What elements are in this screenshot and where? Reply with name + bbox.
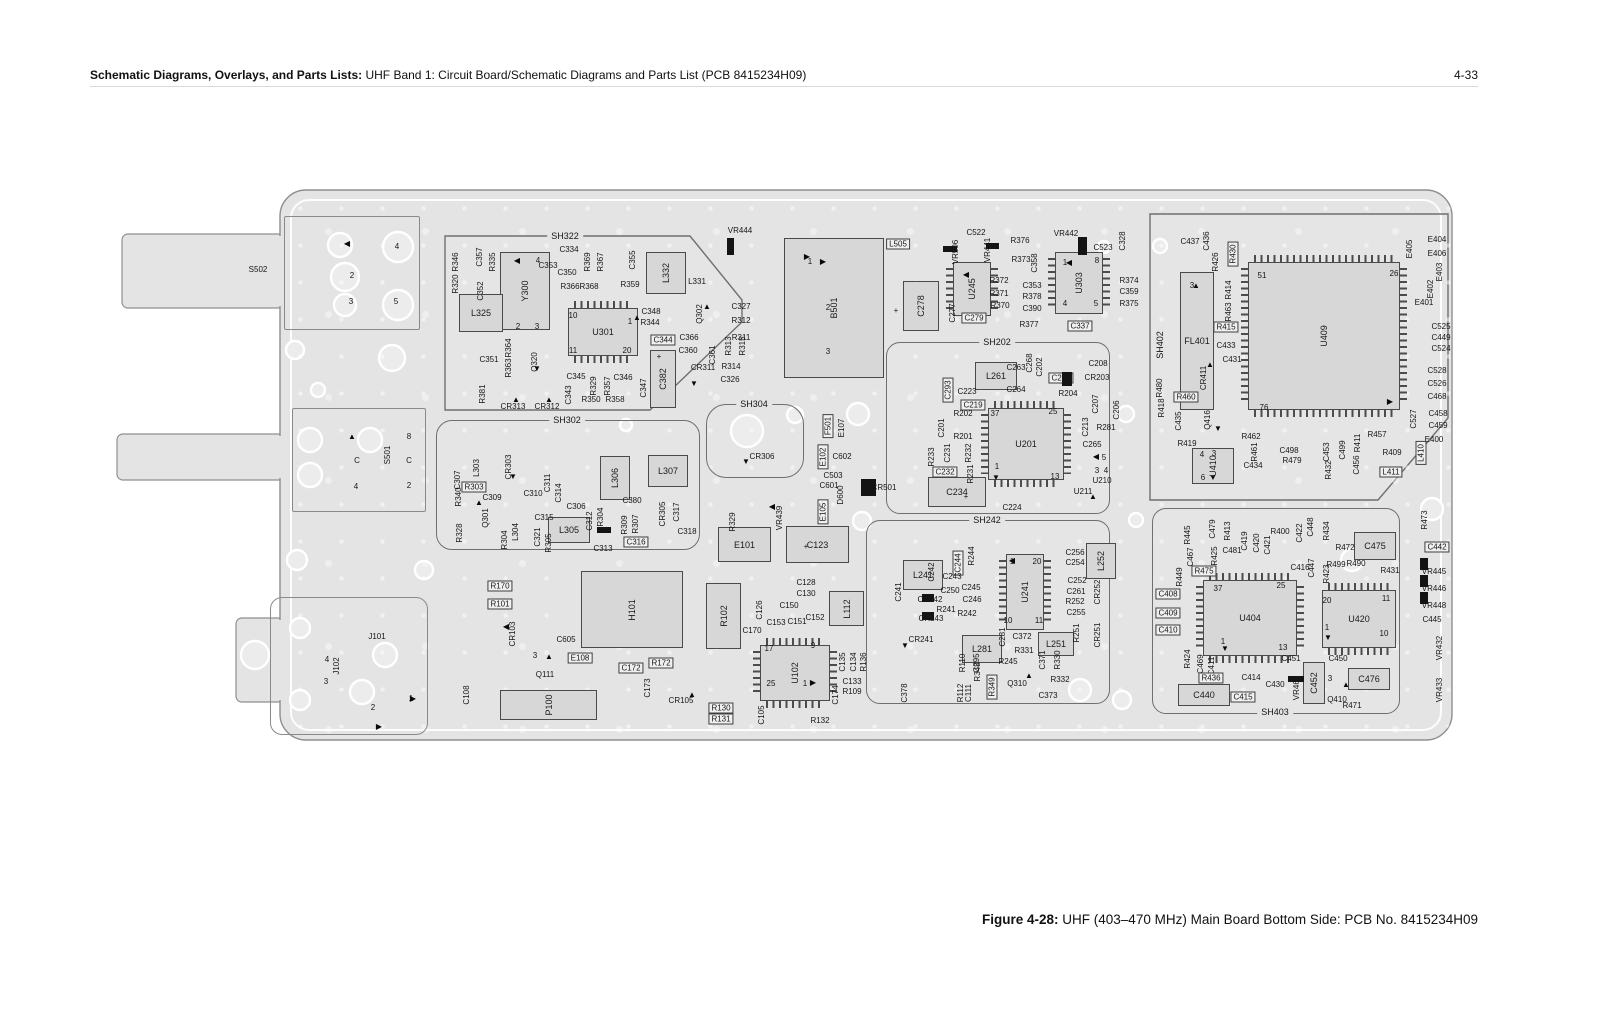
polarity-mark: ▲ xyxy=(475,499,483,507)
polarity-mark: ▼ xyxy=(1209,474,1217,482)
ic-label-C278: C278 xyxy=(916,295,926,317)
ref-label-S501: S501 xyxy=(384,446,392,465)
ic-label-L305: L305 xyxy=(559,525,579,535)
ref-label-R460: R460 xyxy=(1173,392,1198,403)
ref-label-C310: C310 xyxy=(523,490,542,498)
ref-label-5: 5 xyxy=(1094,300,1098,308)
ref-label-10: 10 xyxy=(1004,617,1013,625)
ref-label-4: 4 xyxy=(395,243,399,251)
ref-label-C450: C450 xyxy=(1328,655,1347,663)
ref-label-26: 26 xyxy=(1390,270,1399,278)
board-hole xyxy=(311,383,325,397)
shield-label-SH402: SH402 xyxy=(1155,327,1165,363)
ref-label-L331: L331 xyxy=(688,278,706,286)
ref-label-C528: C528 xyxy=(1427,367,1446,375)
ref-label-E404: E404 xyxy=(1428,236,1447,244)
ref-label-C499: C499 xyxy=(1339,440,1347,459)
diode-mark xyxy=(1062,372,1072,386)
ref-label-R418: R418 xyxy=(1158,398,1166,417)
ref-label-Q410: Q410 xyxy=(1327,696,1347,704)
ic-C476: C476 xyxy=(1348,668,1390,690)
ref-label-R332: R332 xyxy=(1050,676,1069,684)
ic-pins xyxy=(1209,573,1291,580)
diode-mark xyxy=(1420,592,1428,604)
ic-label-C382: C382 xyxy=(658,368,668,390)
ref-label-C313: C313 xyxy=(593,545,612,553)
ref-label-3: 3 xyxy=(1328,675,1332,683)
ref-label-R329: R329 xyxy=(729,512,737,531)
ref-label-+: + xyxy=(964,493,969,501)
diode-mark xyxy=(922,594,934,602)
ref-label-C174: C174 xyxy=(832,685,840,704)
ref-label-R364: R364 xyxy=(505,338,513,357)
ic-label-C475: C475 xyxy=(1364,541,1386,551)
ref-label-C372: C372 xyxy=(1012,633,1031,641)
ref-label-C311: C311 xyxy=(544,474,552,493)
ref-label-R431: R431 xyxy=(1380,567,1399,575)
ref-label-R430: R430 xyxy=(1228,241,1239,266)
board-hole xyxy=(847,403,869,425)
polarity-mark: ▼ xyxy=(992,474,1000,482)
ic-label-U102: U102 xyxy=(790,662,800,684)
ref-label-C360: C360 xyxy=(678,347,697,355)
polarity-mark: ▼ xyxy=(1221,645,1229,653)
ref-label-8: 8 xyxy=(1095,257,1099,265)
ic-pins xyxy=(1064,414,1071,474)
ref-label-R472: R472 xyxy=(1335,544,1354,552)
ref-label-C: C xyxy=(406,457,412,465)
ref-label-R490: R490 xyxy=(1346,560,1365,568)
ref-label-R281: R281 xyxy=(1096,424,1115,432)
polarity-mark: ▲ xyxy=(688,691,696,699)
ref-label-11: 11 xyxy=(1035,617,1043,625)
ref-label-2: 2 xyxy=(371,704,375,712)
ic-B501: B501 xyxy=(784,238,884,378)
ref-label-R367: R367 xyxy=(597,252,605,271)
ref-label-C352: C352 xyxy=(477,281,485,300)
ref-label-R473: R473 xyxy=(1421,510,1429,529)
ref-label-C442: C442 xyxy=(1424,542,1449,553)
ref-label-13: 13 xyxy=(1051,473,1060,481)
ref-label-4: 4 xyxy=(1200,451,1204,459)
ref-label-J102: J102 xyxy=(333,657,341,674)
ref-label-8: 8 xyxy=(407,433,411,441)
ref-label-Q111: Q111 xyxy=(536,671,554,679)
ref-label-C321: C321 xyxy=(534,527,542,546)
ref-label-C390: C390 xyxy=(1022,305,1041,313)
polarity-mark: ◀ xyxy=(1066,259,1072,267)
ref-label-3: 3 xyxy=(1212,450,1216,458)
ref-label-R363: R363 xyxy=(505,358,513,377)
ref-label-E401: E401 xyxy=(1415,299,1434,307)
ref-label-R463: R463 xyxy=(1225,302,1233,321)
board-hole xyxy=(1153,239,1167,253)
ref-label-+: + xyxy=(657,353,662,361)
ref-label-CR306: CR306 xyxy=(750,453,775,461)
ref-label-CR251: CR251 xyxy=(1094,623,1102,648)
ref-label-R370: R370 xyxy=(990,302,1009,310)
ref-label-C479: C479 xyxy=(1209,519,1217,538)
ref-label-25: 25 xyxy=(1277,582,1286,590)
ic-label-L252: L252 xyxy=(1096,551,1106,571)
ic-label-U420: U420 xyxy=(1348,614,1370,624)
ref-label-R378: R378 xyxy=(1022,293,1041,301)
ref-label-C348: C348 xyxy=(641,308,660,316)
ref-label-C447: C447 xyxy=(1308,558,1316,577)
ic-C452: C452 xyxy=(1303,662,1325,704)
polarity-mark: ▲ xyxy=(1025,672,1033,680)
ref-label-CR241: CR241 xyxy=(909,636,934,644)
connector-outline xyxy=(270,597,428,735)
ref-label-C316: C316 xyxy=(623,537,648,548)
ic-label-U409: U409 xyxy=(1319,325,1329,347)
ref-label-C105: C105 xyxy=(758,705,766,724)
ref-label-L505: L505 xyxy=(886,239,910,250)
ic-L252: L252 xyxy=(1086,543,1116,579)
ic-L241: L241 xyxy=(903,560,943,590)
ref-label-R457: R457 xyxy=(1367,431,1386,439)
ref-label-F501: F501 xyxy=(823,414,834,438)
ref-label-3: 3 xyxy=(533,652,537,660)
ic-L332: L332 xyxy=(646,252,686,294)
ref-label-R231: R231 xyxy=(967,464,975,483)
ref-label-R314: R314 xyxy=(721,363,740,371)
ref-label-13: 13 xyxy=(1279,644,1288,652)
polarity-mark: ▲ xyxy=(1192,282,1200,290)
diode-mark xyxy=(922,612,934,620)
board-hole xyxy=(241,641,269,669)
ref-label-C315: C315 xyxy=(534,514,553,522)
ref-label-C467: C467 xyxy=(1187,547,1195,566)
ref-label-C459: C459 xyxy=(1428,422,1447,430)
ref-label-C353: C353 xyxy=(538,262,557,270)
ref-label-E102: E102 xyxy=(818,445,829,470)
polarity-mark: ◀ xyxy=(514,257,520,265)
ref-label-R311: R311 xyxy=(732,334,751,342)
polarity-mark: ▲ xyxy=(512,396,520,404)
ref-label-C422: C422 xyxy=(1296,523,1304,542)
ic-U102: U102 xyxy=(760,645,830,701)
ref-label-E105: E105 xyxy=(818,500,829,525)
ref-label-R109: R109 xyxy=(842,688,861,696)
ref-label-C433: C433 xyxy=(1216,342,1235,350)
ref-label-C173: C173 xyxy=(644,678,652,697)
ref-label-R331: R331 xyxy=(1014,647,1033,655)
shield-label-SH304: SH304 xyxy=(736,399,772,409)
ic-U201: U201 xyxy=(988,408,1064,480)
ref-label-C366: C366 xyxy=(679,334,698,342)
ic-label-FL401: FL401 xyxy=(1184,336,1210,346)
ref-label-R357: R357 xyxy=(604,376,612,395)
board-tab xyxy=(117,434,291,480)
ic-pins xyxy=(1209,656,1291,663)
ref-label-C437: C437 xyxy=(1180,238,1199,246)
ic-pins xyxy=(1241,268,1248,404)
ref-label-3: 3 xyxy=(324,678,328,686)
polarity-mark: ▼ xyxy=(901,642,909,650)
ref-label-R432: R432 xyxy=(1325,460,1333,479)
polarity-mark: ▼ xyxy=(509,473,517,481)
board-hole xyxy=(415,561,433,579)
board-hole xyxy=(1129,513,1143,527)
ref-label-E403: E403 xyxy=(1436,263,1444,282)
polarity-mark: ▶ xyxy=(820,258,826,266)
ref-label-R303: R303 xyxy=(461,482,486,493)
ic-L306: L306 xyxy=(600,456,630,500)
ic-pins xyxy=(766,638,824,645)
ref-label-1: 1 xyxy=(803,680,807,688)
ref-label-R312: R312 xyxy=(731,317,750,325)
ref-label-R251: R251 xyxy=(1073,623,1081,642)
ref-label-C453: C453 xyxy=(1323,442,1331,461)
ref-label-17: 17 xyxy=(765,645,774,653)
polarity-mark: ◀ xyxy=(769,503,775,511)
ref-label-C246: C246 xyxy=(962,596,981,604)
polarity-mark: ▶ xyxy=(1387,398,1393,406)
ref-label-R409: R409 xyxy=(1382,449,1401,457)
ref-label-C153: C153 xyxy=(766,619,785,627)
ref-label-R348: R348 xyxy=(974,662,982,681)
ic-FL401: FL401 xyxy=(1180,272,1214,410)
ref-label-C458: C458 xyxy=(1428,410,1447,418)
ic-L112: L112 xyxy=(829,591,864,626)
ref-label-C152: C152 xyxy=(805,614,824,622)
polarity-mark: ▲ xyxy=(1089,493,1097,501)
polarity-mark: ◀ xyxy=(344,240,350,248)
ic-label-Y300: Y300 xyxy=(520,280,530,301)
ic-label-L112: L112 xyxy=(842,599,852,618)
ref-label-3: 3 xyxy=(826,348,830,356)
polarity-mark: ▶ xyxy=(810,679,816,687)
ref-label-C434: C434 xyxy=(1243,462,1262,470)
ref-label-R449: R449 xyxy=(1176,567,1184,586)
ref-label-C241: C241 xyxy=(895,582,903,601)
ref-label-C201: C201 xyxy=(938,418,946,437)
ref-label-25: 25 xyxy=(1049,408,1058,416)
ref-label-VR439: VR439 xyxy=(776,506,784,530)
ref-label-VR442: VR442 xyxy=(1054,230,1078,238)
ref-label-C254: C254 xyxy=(1065,559,1084,567)
ref-label-C361: C361 xyxy=(709,345,717,364)
ref-label-C133: C133 xyxy=(842,678,861,686)
ref-label-L303: L303 xyxy=(473,459,481,477)
ref-label-R232: R232 xyxy=(965,443,973,462)
ref-label-R329: R329 xyxy=(590,376,598,395)
ref-label-J101: J101 xyxy=(368,633,385,641)
ref-label-C255: C255 xyxy=(1066,609,1085,617)
polarity-mark: ▲ xyxy=(1342,681,1350,689)
ref-label-C409: C409 xyxy=(1155,608,1180,619)
ic-U409: U409 xyxy=(1248,262,1400,410)
ref-label-25: 25 xyxy=(767,680,776,688)
polarity-mark: ◀ xyxy=(503,623,509,631)
shield-SH304 xyxy=(706,404,804,478)
ic-pins xyxy=(753,651,760,695)
ic-C123: C123 xyxy=(786,526,849,563)
ic-pins xyxy=(1400,268,1407,404)
ref-label-C343: C343 xyxy=(565,385,573,404)
ic-pins xyxy=(1254,410,1394,417)
ref-label-C126: C126 xyxy=(756,600,764,619)
ref-label-C525: C525 xyxy=(1431,323,1450,331)
polarity-mark: ▶ xyxy=(804,253,810,261)
ic-pins xyxy=(1103,258,1110,308)
ref-label-2: 2 xyxy=(516,323,520,331)
ref-label-C328: C328 xyxy=(1119,231,1127,250)
diode-mark xyxy=(1420,558,1428,570)
ref-label-C371: C371 xyxy=(1039,650,1047,669)
ic-label-C440: C440 xyxy=(1193,690,1215,700)
ref-label-C252: C252 xyxy=(1067,577,1086,585)
ref-label-R374: R374 xyxy=(1119,277,1138,285)
ic-label-L306: L306 xyxy=(610,468,620,488)
ref-label-L304: L304 xyxy=(512,523,520,541)
ref-label-R376: R376 xyxy=(1010,237,1029,245)
ref-label-R479: R479 xyxy=(1282,457,1301,465)
ic-pins xyxy=(1297,586,1304,650)
ref-label-C261: C261 xyxy=(1066,588,1085,596)
ref-label-R475: R475 xyxy=(1191,566,1216,577)
ref-label-C359: C359 xyxy=(1119,288,1138,296)
ref-label-E400: E400 xyxy=(1425,436,1444,444)
ref-label-C451: C451 xyxy=(1281,655,1300,663)
ref-label-C326: C326 xyxy=(720,376,739,384)
diode-mark xyxy=(1420,575,1428,587)
ref-label-C498: C498 xyxy=(1279,447,1298,455)
ref-label-C172: C172 xyxy=(618,663,643,674)
caption-bold: Figure 4-28: xyxy=(982,912,1059,927)
board-hole xyxy=(286,341,304,359)
ref-label-C503: C503 xyxy=(823,472,842,480)
polarity-mark: ▲ xyxy=(545,396,553,404)
polarity-mark: ▼ xyxy=(1324,634,1332,642)
figure-caption: Figure 4-28: UHF (403–470 MHz) Main Boar… xyxy=(982,912,1478,927)
diode-mark xyxy=(727,238,734,255)
ref-label-CR311: CR311 xyxy=(691,364,715,372)
ic-pins xyxy=(1044,560,1051,624)
polarity-mark: ▶ xyxy=(376,723,382,731)
ref-label-C469: C469 xyxy=(1197,654,1205,673)
ref-label-R172: R172 xyxy=(648,658,673,669)
ref-label-C414: C414 xyxy=(1241,674,1260,682)
ref-label-C314: C314 xyxy=(555,483,563,502)
ref-label-R328: R328 xyxy=(456,523,464,542)
ref-label-10: 10 xyxy=(569,312,578,320)
shield-label-SH202: SH202 xyxy=(979,337,1015,347)
ref-label-C421: C421 xyxy=(1264,535,1272,554)
ref-label-1: 1 xyxy=(1325,624,1329,632)
ref-label-R307: R307 xyxy=(632,514,640,533)
ref-label-R400: R400 xyxy=(1270,528,1289,536)
ref-label-R436: R436 xyxy=(1198,673,1223,684)
ref-label-R346: R346 xyxy=(452,252,460,271)
ic-pins xyxy=(1196,586,1203,650)
ref-label-R201: R201 xyxy=(953,433,972,441)
ic-label-U404: U404 xyxy=(1239,613,1261,623)
ref-label-C318: C318 xyxy=(677,528,696,536)
ref-label-C373: C373 xyxy=(1038,692,1057,700)
ref-label-C268: C268 xyxy=(1026,353,1034,372)
ref-label-11: 11 xyxy=(1382,595,1390,603)
ref-label-C431: C431 xyxy=(1222,356,1241,364)
ref-label-4: 4 xyxy=(1063,300,1067,308)
ref-label-R101: R101 xyxy=(487,599,512,610)
ref-label-C605: C605 xyxy=(556,636,575,644)
ref-label-4: 4 xyxy=(1104,467,1108,475)
ref-label-E406: E406 xyxy=(1428,250,1447,258)
ic-label-U303: U303 xyxy=(1074,272,1084,294)
ref-label-R242: R242 xyxy=(957,610,976,618)
ref-label-E405: E405 xyxy=(1406,240,1414,259)
ref-label-R132: R132 xyxy=(810,717,829,725)
ref-label-C327: C327 xyxy=(731,303,750,311)
diode-mark xyxy=(597,527,611,533)
ref-label-R202: R202 xyxy=(953,410,972,418)
ic-C475: C475 xyxy=(1354,532,1396,560)
ref-label-2: 2 xyxy=(350,272,354,280)
polarity-mark: ▲ xyxy=(545,653,553,661)
ref-label-R425: R425 xyxy=(1211,546,1219,565)
ref-label-C522: C522 xyxy=(966,229,985,237)
polarity-mark: ◀ xyxy=(1009,557,1015,565)
ref-label-C346: C346 xyxy=(613,374,632,382)
diode-mark xyxy=(1288,676,1304,682)
ref-label-3: 3 xyxy=(1095,467,1099,475)
ref-label-R415: R415 xyxy=(1213,322,1238,333)
ref-label-R434: R434 xyxy=(1323,521,1331,540)
ref-label-1: 1 xyxy=(995,463,999,471)
ref-label-R130: R130 xyxy=(708,703,733,714)
ref-label-C256: C256 xyxy=(1065,549,1084,557)
ic-C278: C278 xyxy=(903,281,939,331)
ref-label-E108: E108 xyxy=(568,653,593,664)
ref-label-C130: C130 xyxy=(796,590,815,598)
ref-label-R419: R419 xyxy=(1177,440,1196,448)
ref-label-C281: C281 xyxy=(999,627,1007,646)
ref-label-C358: C358 xyxy=(1031,253,1039,272)
ref-label-5: 5 xyxy=(1102,454,1106,462)
ref-label-C250: C250 xyxy=(940,587,959,595)
ref-label-C347: C347 xyxy=(640,378,648,397)
ref-label-R330: R330 xyxy=(1054,650,1062,669)
ref-label-R304: R304 xyxy=(501,530,509,549)
ic-label-U241: U241 xyxy=(1020,581,1030,603)
polarity-mark: ▲ xyxy=(703,303,711,311)
ref-label-CR312: CR312 xyxy=(535,403,560,411)
ref-label-C357: C357 xyxy=(476,247,484,266)
ref-label-R241: R241 xyxy=(936,606,955,614)
manual-page: Schematic Diagrams, Overlays, and Parts … xyxy=(0,0,1600,1035)
ref-label-R373: R373 xyxy=(1011,256,1030,264)
ref-label-C435: C435 xyxy=(1175,411,1183,430)
ref-label-20: 20 xyxy=(623,347,632,355)
ref-label-S502: S502 xyxy=(249,266,268,274)
ic-label-B501: B501 xyxy=(829,297,839,318)
ic-C440: C440 xyxy=(1178,684,1230,706)
ref-label-R461: R461 xyxy=(1251,442,1259,461)
ic-pins xyxy=(981,414,988,474)
ic-label-L261: L261 xyxy=(986,371,1006,381)
ref-label-3: 3 xyxy=(535,323,539,331)
ref-label-C448: C448 xyxy=(1307,517,1315,536)
ref-label-E107: E107 xyxy=(838,419,846,438)
ref-label-C344: C344 xyxy=(650,335,675,346)
ref-label-R136: R136 xyxy=(860,652,868,671)
ref-label-C135: C135 xyxy=(839,652,847,671)
ic-label-C476: C476 xyxy=(1358,674,1380,684)
ref-label-C334: C334 xyxy=(559,246,578,254)
ref-label-R414: R414 xyxy=(1225,280,1233,299)
